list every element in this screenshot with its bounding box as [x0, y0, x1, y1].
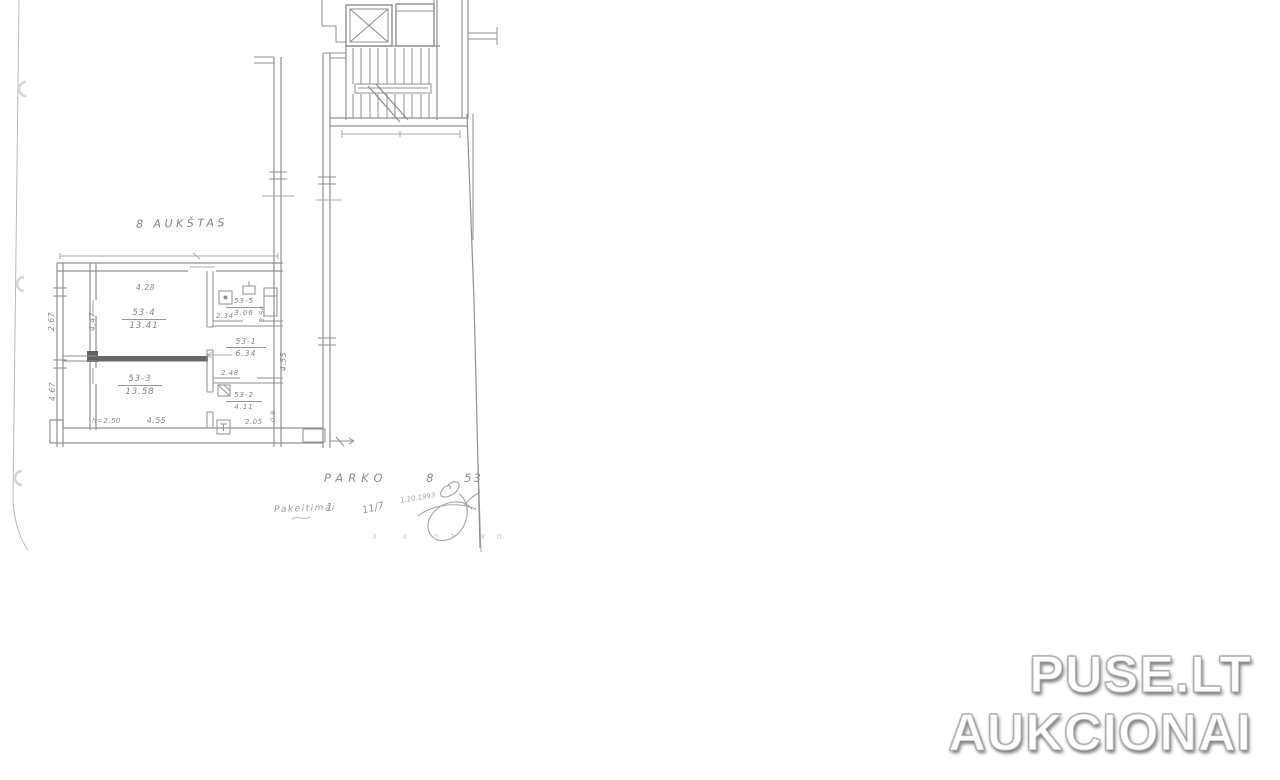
apartment-walls — [50, 253, 323, 447]
cistern-icon — [243, 281, 255, 294]
dim-vent-shaft: 3.54 — [258, 306, 266, 322]
dim-right-53-2: 0.9 — [269, 410, 277, 422]
room-area: 6.34 — [226, 348, 266, 358]
room-label-53-1: 53-1 6.34 — [226, 337, 266, 358]
core-right-walls — [462, 0, 497, 118]
room-area: 4.11 — [226, 402, 262, 412]
dim-top-width: 4.28 — [136, 283, 155, 292]
room-area: 13.41 — [122, 320, 166, 331]
street-name: PARKO — [324, 471, 388, 485]
revision-number: 1 — [326, 501, 333, 514]
dim-room53-5-width: 2.34 — [216, 312, 234, 320]
room-number: 53-2 — [226, 391, 262, 402]
punch-hole-marks — [15, 82, 26, 485]
footer-marks: 3 4 03 80 — [372, 533, 513, 541]
room-number: 53-1 — [226, 337, 266, 348]
dim-above-53-2: 2.48 — [221, 369, 239, 377]
watermark-line2: AUKCIONAI — [948, 704, 1252, 762]
ceiling-height-note: h=2.50 — [92, 417, 121, 425]
page-edge-line — [13, 0, 481, 552]
floor-title: 8 AUKŠTAS — [136, 216, 228, 231]
corridor-walls — [254, 53, 354, 448]
dim-bottom-width: 4.55 — [147, 416, 166, 425]
dim-loggia-lower: 4.67 — [48, 382, 57, 401]
dim-loggia-upper: 2.67 — [47, 312, 56, 331]
room-number: 53-3 — [118, 374, 162, 386]
apartment-number: 53 — [464, 471, 483, 485]
house-number: 8 — [426, 471, 433, 485]
watermark-line1: PUSE.LT — [948, 646, 1252, 704]
room-number: 53-4 — [122, 308, 166, 320]
dim-hall-right-height: 4.55 — [279, 352, 288, 371]
room-label-53-3: 53-3 13.58 — [118, 374, 162, 397]
watermark: PUSE.LT AUKCIONAI — [948, 646, 1252, 762]
address-caption: PARKO 8 53 — [324, 471, 483, 485]
room-area: 13.58 — [118, 386, 162, 397]
dim-room-left-height: 4.47 — [88, 312, 97, 331]
dim-bottom-53-2: 2.05 — [245, 418, 263, 426]
elevator-shaft-icon — [322, 0, 434, 46]
room-label-53-4: 53-4 13.41 — [122, 308, 166, 331]
toilet-icon — [217, 420, 230, 434]
room-label-53-2: 53-2 4.11 — [226, 391, 262, 411]
room-number: 53-5 — [226, 297, 262, 308]
scanned-floorplan-page: 8 AUKŠTAS 53-4 13.41 53-3 13.58 53-5 3.0… — [0, 0, 1280, 780]
